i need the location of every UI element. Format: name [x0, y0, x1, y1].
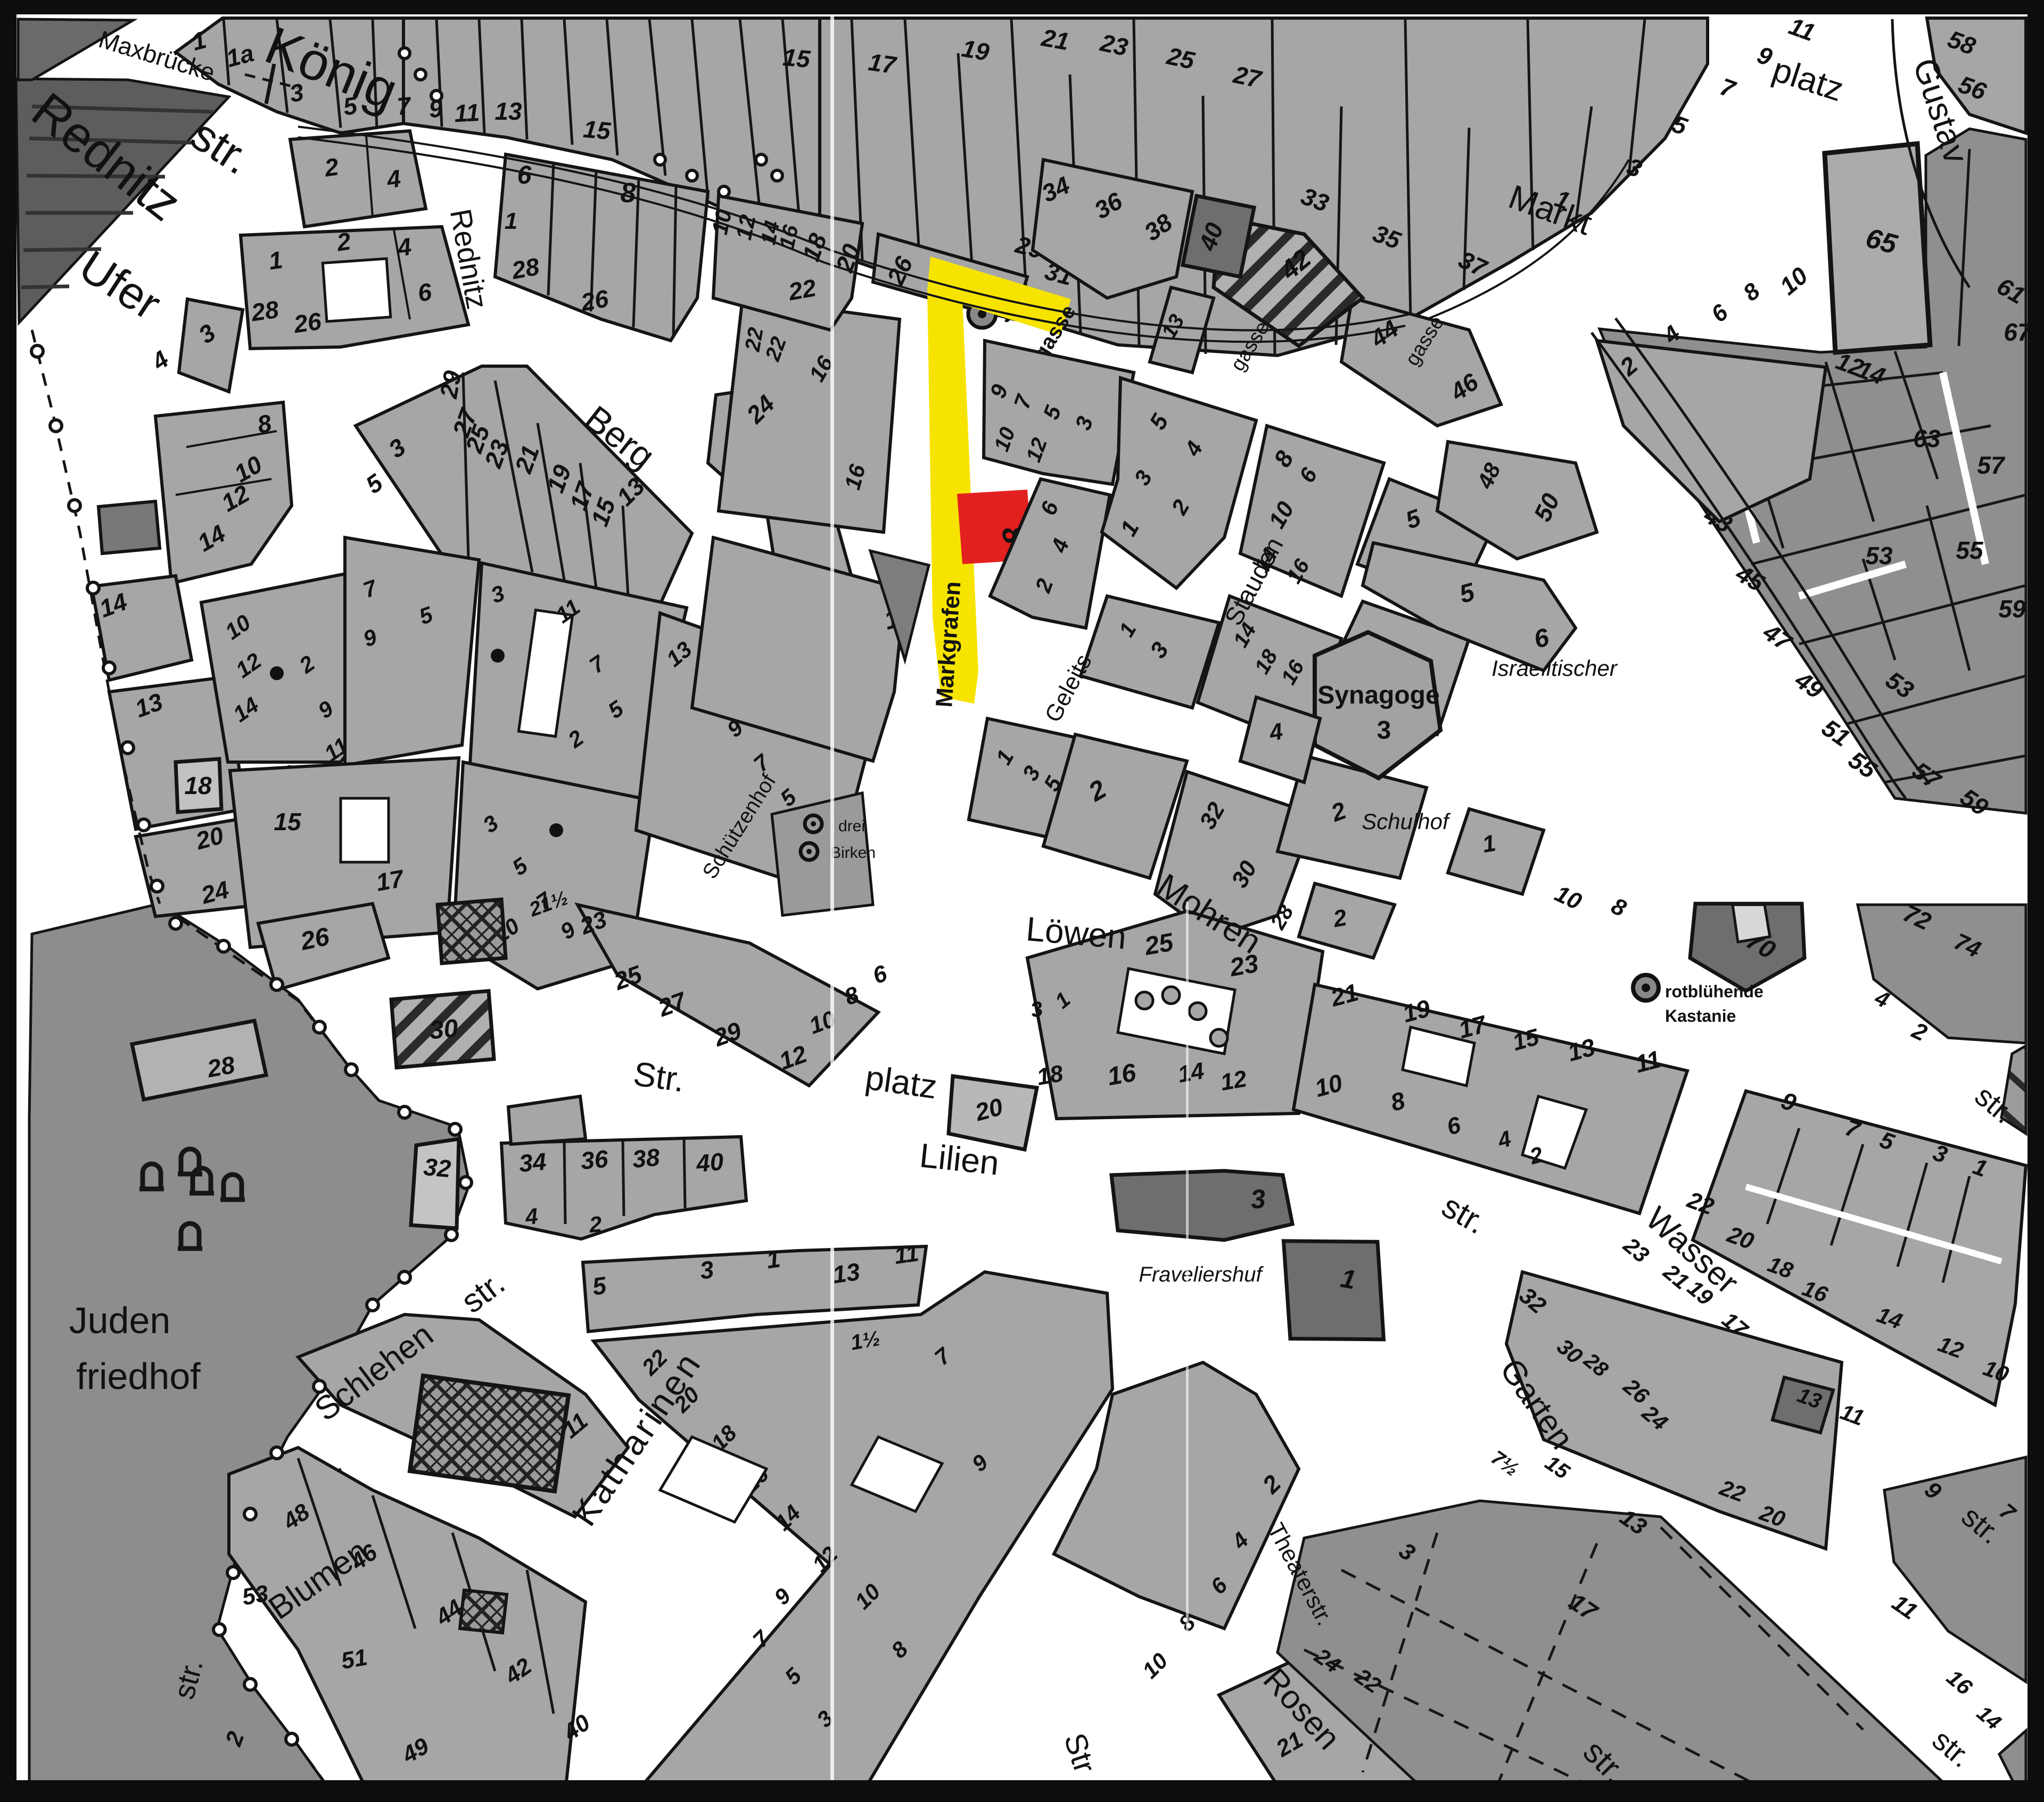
svg-text:1: 1: [505, 208, 517, 234]
svg-text:59: 59: [1998, 595, 2026, 623]
svg-text:19: 19: [960, 34, 992, 66]
svg-text:15: 15: [582, 115, 613, 145]
svg-text:Kastanie: Kastanie: [1665, 1006, 1736, 1026]
svg-text:25: 25: [1142, 928, 1176, 961]
svg-text:11: 11: [454, 98, 480, 127]
svg-text:17: 17: [867, 48, 899, 79]
svg-text:23: 23: [1098, 28, 1131, 61]
svg-text:51: 51: [339, 1644, 369, 1674]
svg-text:28: 28: [509, 252, 542, 284]
svg-text:30: 30: [428, 1014, 459, 1045]
svg-text:18: 18: [184, 772, 212, 799]
svg-text:13: 13: [831, 1258, 862, 1289]
svg-text:28: 28: [249, 295, 281, 327]
svg-text:26: 26: [292, 307, 323, 338]
svg-text:Birken: Birken: [830, 844, 876, 862]
svg-text:28: 28: [205, 1051, 237, 1082]
svg-text:drei: drei: [838, 817, 865, 835]
svg-text:57: 57: [1977, 451, 2006, 479]
svg-text:Str.: Str.: [631, 1054, 687, 1100]
svg-text:38: 38: [631, 1143, 661, 1173]
svg-text:6: 6: [517, 161, 532, 189]
svg-text:Fraveliershuf: Fraveliershuf: [1139, 1263, 1264, 1286]
svg-text:3: 3: [1249, 1184, 1267, 1214]
svg-text:53: 53: [1865, 542, 1893, 569]
svg-text:15: 15: [782, 43, 812, 73]
svg-text:Israelitischer: Israelitischer: [1491, 656, 1618, 681]
svg-text:11: 11: [893, 1240, 920, 1269]
svg-text:16: 16: [1105, 1059, 1138, 1092]
svg-text:55: 55: [1956, 536, 1984, 564]
svg-text:13: 13: [494, 97, 522, 125]
svg-text:friedhof: friedhof: [76, 1355, 201, 1397]
svg-text:3: 3: [1377, 716, 1391, 745]
svg-text:2: 2: [588, 1211, 603, 1237]
svg-text:22: 22: [786, 274, 819, 305]
svg-text:12: 12: [1218, 1065, 1249, 1096]
svg-text:63: 63: [1913, 425, 1941, 452]
svg-text:Synagoge: Synagoge: [1317, 681, 1439, 709]
svg-text:14: 14: [1176, 1057, 1206, 1088]
svg-text:15: 15: [274, 808, 302, 836]
svg-text:rotblühende: rotblühende: [1665, 982, 1763, 1001]
svg-text:4: 4: [524, 1203, 539, 1229]
svg-text:Juden: Juden: [69, 1300, 171, 1341]
svg-text:29: 29: [434, 368, 466, 401]
svg-text:34: 34: [518, 1147, 548, 1177]
svg-text:18: 18: [1035, 1060, 1065, 1090]
svg-text:21: 21: [1039, 23, 1071, 55]
svg-text:Schulhof: Schulhof: [1362, 809, 1451, 834]
svg-text:36: 36: [580, 1145, 609, 1175]
svg-text:40: 40: [695, 1147, 725, 1177]
svg-text:32: 32: [423, 1153, 452, 1183]
svg-text:26: 26: [298, 922, 332, 956]
svg-text:26: 26: [579, 284, 611, 316]
